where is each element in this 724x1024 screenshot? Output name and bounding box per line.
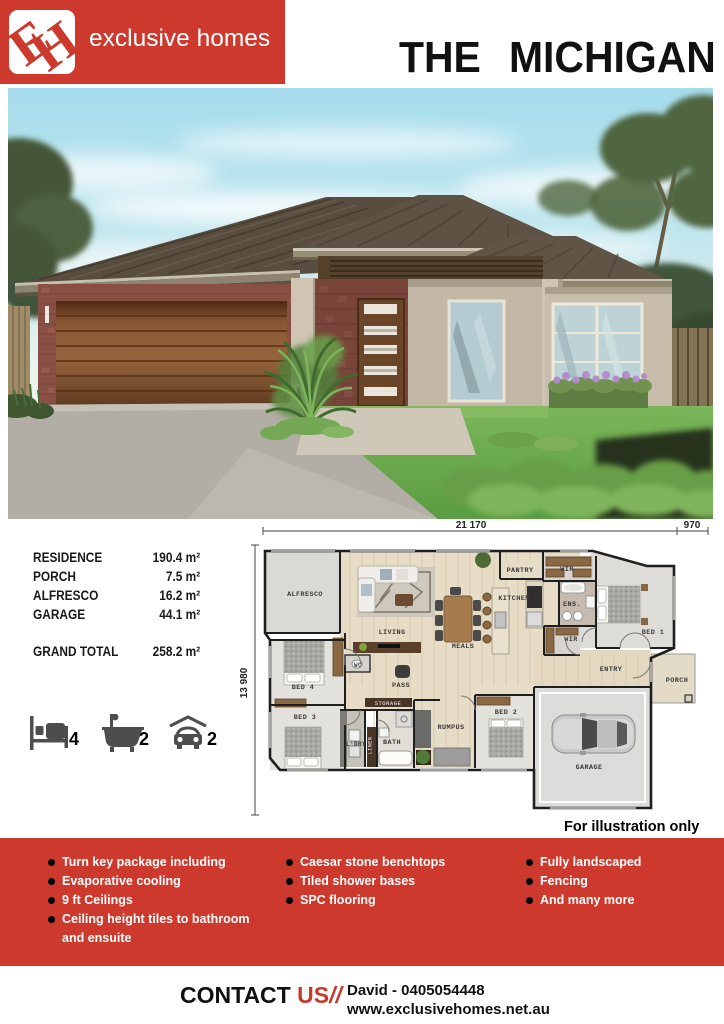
svg-text:WIR: WIR	[564, 636, 578, 644]
svg-text:BATH: BATH	[383, 739, 401, 747]
svg-text:STORAGE: STORAGE	[375, 700, 402, 707]
svg-text:LINEN: LINEN	[368, 737, 374, 755]
svg-text:BED 3: BED 3	[294, 714, 316, 722]
svg-text:MEALS: MEALS	[452, 643, 474, 651]
svg-text:BED 4: BED 4	[292, 684, 314, 692]
svg-text:BED 1: BED 1	[642, 629, 664, 637]
svg-text:PASS: PASS	[392, 682, 410, 690]
svg-text:970: 970	[684, 520, 701, 531]
svg-text:PANTRY: PANTRY	[507, 567, 534, 575]
svg-text:RUMPUS: RUMPUS	[438, 724, 465, 732]
svg-text:ENTRY: ENTRY	[600, 666, 623, 674]
svg-text:21 170: 21 170	[456, 520, 487, 531]
svg-text:L'DRY: L'DRY	[346, 741, 366, 748]
svg-text:ENS.: ENS.	[563, 601, 581, 609]
svg-text:PORCH: PORCH	[666, 677, 688, 685]
svg-text:13 980: 13 980	[240, 667, 250, 698]
svg-text:BED 2: BED 2	[495, 709, 517, 717]
svg-text:LIVING: LIVING	[379, 629, 406, 637]
svg-text:ALFRESCO: ALFRESCO	[287, 591, 323, 599]
svg-text:KITCHEN: KITCHEN	[498, 595, 529, 603]
svg-text:WIR: WIR	[560, 566, 574, 574]
svg-text:GARAGE: GARAGE	[576, 764, 603, 772]
svg-text:WC: WC	[354, 662, 362, 669]
